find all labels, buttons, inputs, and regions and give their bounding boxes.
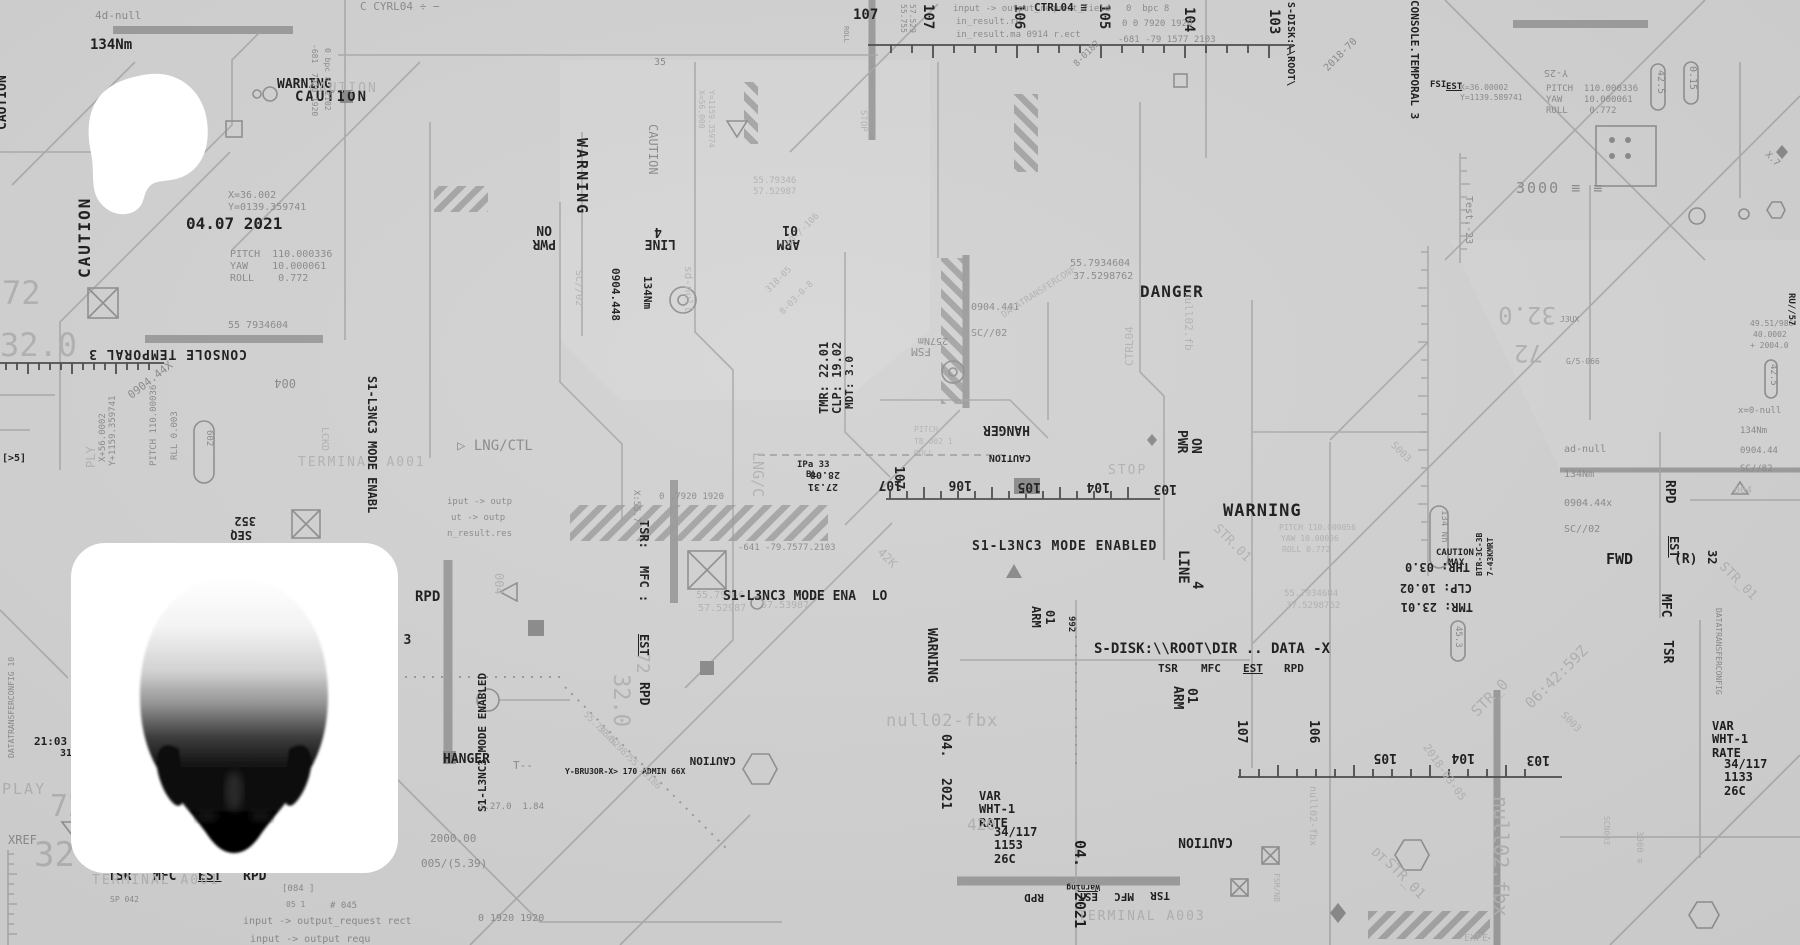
banner-annotation: in_result.re [956, 17, 1021, 27]
banner-annotation: input -> output_request rect [243, 916, 412, 927]
banner-annotation: RLL 0.003 [170, 411, 180, 460]
banner-annotation: 55.79346 [753, 176, 796, 186]
banner-annotation: 103 [1265, 9, 1281, 34]
banner-annotation: CAUTION [0, 75, 11, 130]
banner-annotation: ON [536, 221, 552, 236]
banner-annotation: SC//02 [1564, 524, 1600, 535]
banner-annotation: S-DISK:\\ROOT\DIR .. DATA -X [1094, 642, 1330, 658]
banner-annotation: 105 [1374, 749, 1397, 764]
creator-banner: 4d-null134NmWARNINGCAUTIONCAUTIONX=36.00… [0, 0, 1800, 945]
banner-annotation: SC//82 [1740, 464, 1773, 474]
banner-annotation: [084 ] [282, 884, 315, 894]
banner-annotation: X=36.00002 [1460, 84, 1508, 93]
banner-annotation: 3000 ≡ [1634, 831, 1644, 864]
banner-annotation: STR.01 [1210, 522, 1253, 565]
banner-annotation: x=0-null [1738, 406, 1781, 416]
banner-annotation: ROLL 0.772 [1546, 106, 1616, 116]
banner-annotation: X.7 [1763, 150, 1782, 169]
banner-annotation: TERMINAL A001 [92, 874, 220, 889]
banner-annotation: CONSOLE.TEMPORAL 3 [1408, 0, 1420, 119]
banner-annotation: 7-43KMRT [1487, 537, 1496, 576]
banner-annotation: PWR [533, 235, 556, 250]
banner-annotation: 2000.00 [430, 833, 476, 845]
banner-annotation: iput -> outp [447, 497, 512, 507]
banner-annotation: ROLL 0.772 [230, 273, 308, 284]
banner-annotation: 134Nm [641, 276, 653, 309]
banner-annotation: DATATRANSFERCONFIG 10 [8, 657, 17, 758]
banner-annotation: [>5] [2, 453, 26, 464]
banner-annotation: DATATRANSFERCONFIG [1713, 608, 1722, 695]
banner-annotation: J3UX [1560, 316, 1579, 325]
banner-annotation: 21:03 [34, 736, 67, 748]
banner-annotation: MFC [1114, 890, 1134, 902]
banner-annotation: VAR WHT-1 RATE [1712, 720, 1748, 760]
banner-annotation: ROLL 0.772 [1282, 546, 1330, 555]
banner-annotation: 0 0 7920 1920 [1122, 19, 1192, 29]
banner-annotation: CTRL04 ≡ [1034, 2, 1087, 14]
banner-annotation: FSM [911, 345, 931, 357]
banner-annotation: 104 [1452, 749, 1475, 764]
banner-annotation: sd-null [682, 266, 694, 312]
banner-annotation: 8-03-0-8 [778, 279, 816, 317]
banner-annotation: YAW 10.000061 [1546, 95, 1633, 105]
banner-annotation: 57.52987 [753, 187, 796, 197]
banner-annotation: RPD [1024, 891, 1044, 903]
banner-annotation: PLY [85, 446, 98, 468]
banner-annotation: LCKD [319, 427, 330, 451]
banner-annotation: 134Nm [1740, 426, 1767, 436]
banner-annotation: 106 [949, 476, 972, 491]
banner-annotation: 0 bpc 8 [1126, 4, 1169, 14]
banner-annotation: TERMINAL A003 [1078, 910, 1206, 925]
banner-annotation: 134Nm [1564, 469, 1594, 480]
banner-annotation: 134Nm [90, 38, 132, 54]
banner-annotation: 0904.44 [1740, 446, 1778, 456]
banner-annotation: WARNING [1223, 502, 1302, 521]
banner-annotation: TSR [1158, 663, 1178, 675]
banner-annotation: IPa 33 [797, 460, 830, 470]
banner-annotation: 32.0 [1498, 301, 1556, 328]
banner-annotation: PLAY [2, 781, 46, 798]
banner-annotation: C CYRL04 ÷ − [360, 1, 439, 13]
banner-annotation: 104 [1087, 478, 1110, 493]
banner-annotation: 4 [654, 223, 662, 238]
banner-annotation: 42.5 [1655, 70, 1666, 94]
banner-annotation: in_result.ma 0914 r.ect [956, 30, 1081, 40]
banner-annotation: WARNING [923, 628, 938, 683]
banner-annotation: 105 [1018, 478, 1041, 493]
banner-annotation: RPD [1661, 480, 1676, 503]
banner-annotation: PITCH 110.00036 [149, 385, 159, 466]
banner-annotation: 57.529 [907, 4, 916, 33]
banner-annotation: null02.fb [1182, 291, 1194, 351]
banner-annotation: X+56.0002 [98, 413, 108, 462]
banner-annotation: SP 042 [110, 896, 139, 905]
banner-annotation: LINE [1174, 550, 1190, 584]
banner-annotation: 0904.44x [1564, 498, 1612, 509]
banner-annotation: 06:42:59Z [1522, 643, 1591, 712]
banner-annotation: 42.5 [1768, 364, 1778, 386]
patreon-logo[interactable] [80, 72, 210, 215]
banner-annotation: -681 7920 1920 [309, 44, 318, 116]
banner-annotation: TB 002 1 [914, 438, 953, 447]
banner-annotation: ON [1187, 438, 1202, 454]
banner-annotation: 2018-70 [1322, 36, 1360, 74]
banner-annotation: 004 [492, 573, 505, 595]
banner-annotation: SEQ [230, 528, 252, 541]
banner-annotation: 005/(5.39) [421, 858, 487, 870]
banner-annotation: CAUTION [1436, 548, 1474, 558]
banner-annotation: null02-fbx [1307, 786, 1318, 846]
banner-annotation: # 045 [330, 901, 357, 911]
banner-annotation: 2021 [937, 778, 952, 809]
banner-annotation: S003 [1388, 440, 1413, 465]
banner-annotation: SCN003 [1601, 816, 1610, 845]
banner-annotation: 352 [234, 514, 256, 527]
banner-annotation: S-DISK:\\ROOT\ [1285, 2, 1296, 86]
banner-annotation: YAW 10.00006 [1281, 535, 1339, 544]
banner-annotation: TSR: [637, 520, 650, 549]
banner-annotation: 8-0182 [1072, 39, 1102, 69]
banner-annotation: Y=0139.359741 [228, 202, 306, 213]
banner-annotation: 57.52987 [698, 603, 746, 614]
banner-annotation: TMR: 23.01 [1401, 600, 1473, 613]
banner-annotation: ROLL [841, 26, 849, 43]
banner-annotation: S003 [1558, 710, 1583, 735]
banner-annotation: ad-null [1564, 444, 1606, 455]
banner-annotation: TSR [1150, 889, 1170, 901]
banner-annotation: + 2004.0 [1750, 342, 1789, 351]
banner-annotation: X=56.000 [696, 90, 705, 129]
banner-annotation: YAW 10.000061 [230, 261, 326, 272]
banner-annotation: STOP [1108, 464, 1147, 479]
patreon-blob-icon [80, 72, 210, 215]
banner-annotation: ▷ LNG/CTL [457, 439, 533, 455]
banner-annotation: STR_01 [1716, 560, 1759, 603]
banner-annotation: CONSOLE TEMPORAL 3 [88, 345, 247, 360]
banner-annotation: X:55.7 [631, 490, 641, 523]
banner-annotation: SC//02 [573, 270, 584, 306]
banner-annotation: Y-BRU3OR-X> 170 ADMIN 66X [565, 768, 685, 777]
banner-annotation: 602 [204, 430, 214, 446]
banner-annotation: 27.31 [808, 481, 838, 492]
banner-annotation: ROLL [914, 450, 933, 459]
banner-annotation: ARM [1029, 606, 1042, 628]
banner-annotation: FWD [1606, 551, 1633, 568]
banner-annotation: MFC [1201, 663, 1221, 675]
banner-annotation: G/5-066 [1566, 358, 1600, 367]
banner-annotation: MDT: 3.0 [844, 356, 856, 409]
banner-annotation: 4 [1188, 581, 1204, 589]
banner-annotation: 72 [1514, 339, 1543, 366]
banner-annotation: BTR-3C-3B [1476, 533, 1485, 576]
banner-annotation: 107 [879, 476, 902, 491]
banner-annotation: 004 [274, 376, 296, 389]
banner-annotation: null02.fbx [1490, 796, 1512, 916]
banner-annotation: MFC [1657, 594, 1672, 617]
banner-annotation: 34/117 1133 26C [1724, 758, 1767, 798]
banner-annotation: PWR [1173, 430, 1188, 453]
banner-annotation: THR: 03.0 [1405, 560, 1470, 573]
banner-annotation: S1-L3NC3 MODE ENABLED [972, 540, 1157, 555]
banner-annotation: 107 [853, 8, 878, 24]
banner-annotation: 134 Nh [1439, 510, 1449, 543]
banner-annotation: 01 [1183, 688, 1198, 704]
banner-annotation: CTRL04 [1124, 326, 1136, 366]
banner-annotation: i.27.0 1.84 [479, 802, 544, 812]
banner-annotation: Warning [1066, 882, 1100, 891]
banner-annotation: 3000 ≡ ≡ [1516, 180, 1604, 197]
banner-annotation: Y-2S [1544, 67, 1568, 78]
banner-annotation: 37.5298762 [1286, 601, 1340, 611]
banner-annotation: XREF [8, 834, 37, 847]
banner-annotation: RPD [415, 590, 440, 606]
banner-annotation: 37.52987 [595, 724, 633, 762]
banner-annotation: TERMINAL A001 [298, 456, 426, 471]
banner-annotation: 55 7934604 [228, 320, 288, 331]
banner-annotation: -641 -79.7577.2103 [738, 543, 836, 553]
banner-annotation: EXPE [1464, 933, 1488, 944]
banner-annotation: STOP [858, 110, 868, 132]
banner-annotation: Test.-23 [1463, 196, 1474, 244]
banner-annotation: 55.755 [898, 4, 907, 33]
banner-annotation: EST [1243, 663, 1263, 675]
banner-annotation: 04. [1071, 840, 1088, 867]
banner-annotation: BL [806, 470, 817, 480]
banner-annotation: CLP: 10.02 [1400, 581, 1472, 594]
banner-annotation: n_result.res [447, 529, 512, 539]
banner-annotation: FSM/NB [1271, 873, 1280, 902]
banner-annotation: 45.3 [1453, 626, 1463, 648]
banner-annotation: PITCH 110.000056 [1279, 524, 1356, 533]
banner-annotation: 40.0002 [1753, 331, 1787, 340]
banner-annotation: 42K [874, 546, 899, 571]
banner-annotation: Y=1139.589741 [1460, 94, 1523, 103]
banner-annotation: S1-L3NC3 MODE ENA LO [723, 590, 887, 605]
banner-annotation: 0 1920 1920 [478, 913, 544, 924]
banner-annotation: CAUTION [1178, 833, 1233, 848]
banner-annotation: 32.0 [607, 674, 632, 727]
banner-annotation: 32.0 [0, 328, 77, 364]
banner-annotation: RPD [1284, 663, 1304, 675]
banner-annotation: 37.5298762 [1073, 271, 1133, 282]
banner-annotation: 55.7934604 [1070, 258, 1130, 269]
banner-annotation: PITCH [914, 426, 938, 435]
banner-annotation: 35 [654, 57, 666, 68]
banner-annotation: 107 [1233, 720, 1248, 743]
banner-annotation: X=36.002 [228, 190, 276, 201]
banner-annotation: 0 .7920 1920 [659, 492, 724, 502]
banner-annotation: 0 bpc 8 2102 [322, 48, 331, 111]
banner-annotation: Y=1159.35974 [706, 90, 715, 148]
banner-annotation: 32 [1705, 550, 1718, 564]
banner-annotation: TSR [1659, 640, 1674, 663]
banner-annotation: S1-L3NC3 MODE ENABL [365, 376, 378, 513]
banner-annotation: input -> output requ [250, 934, 370, 945]
banner-annotation: 0.15 [1687, 66, 1698, 90]
banner-annotation: 04.07 2021 [186, 215, 282, 233]
banner-annotation: 55.7934684 [1284, 589, 1338, 599]
banner-annotation: 107 [919, 4, 935, 29]
banner-annotation: 0904.448 [609, 268, 621, 321]
banner-annotation: EST [637, 634, 650, 656]
banner-annotation: CAUTION [646, 124, 659, 175]
banner-annotation: 05 1 [286, 901, 305, 910]
banner-annotation: T-- [513, 760, 533, 772]
banner-annotation: FSI [1430, 80, 1446, 90]
banner-annotation: CAUTION [309, 82, 378, 97]
banner-annotation: 420 [967, 816, 996, 834]
banner-annotation: 992 [1066, 616, 1076, 632]
banner-annotation: -681 -79 1577 2103 [1118, 35, 1216, 45]
banner-annotation: 106 [1305, 720, 1320, 743]
banner-annotation: S1-L3NC3 MODE ENABLED [477, 673, 489, 812]
banner-annotation: SC//02 [971, 328, 1007, 339]
banner-annotation: PITCH 110.000336 [230, 249, 332, 260]
banner-annotation: (R) [1674, 553, 1697, 568]
banner-annotation: 01 [1043, 610, 1056, 624]
banner-annotation: RPD [635, 682, 650, 705]
creator-avatar[interactable] [71, 543, 398, 873]
banner-annotation: 318-05 [764, 265, 794, 295]
banner-annotation: PITCH 110.000336 [1546, 84, 1638, 94]
banner-annotation: CAUTION [690, 754, 736, 766]
banner-annotation: 103 [1527, 751, 1550, 766]
banner-annotation: Y+1159.359741 [108, 396, 118, 466]
banner-annotation: RU//57 [1786, 293, 1796, 326]
banner-annotation: 103 [1154, 480, 1177, 495]
banner-annotation: ut -> outp [451, 513, 505, 523]
banner-annotation: DATATRANSFERCONF [1000, 265, 1078, 321]
banner-annotation: 004 [1734, 485, 1752, 496]
banner-annotation: STR_0 [1468, 676, 1512, 720]
banner-annotation: WARNING [573, 138, 590, 215]
banner-annotation: 34/117 1153 26C [994, 826, 1037, 866]
banner-annotation: LNG/C [749, 452, 766, 497]
banner-annotation: CAUTION [989, 452, 1031, 463]
creator-head-image [71, 543, 398, 873]
banner-annotation: MFC : [637, 566, 650, 602]
banner-annotation: 04. [937, 734, 952, 757]
banner-annotation: 72 [2, 276, 41, 312]
banner-annotation: 4d-null [95, 10, 141, 22]
banner-annotation: HANGER [983, 421, 1030, 436]
banner-annotation: ARM [1169, 686, 1184, 709]
banner-annotation: STR_01 [1381, 856, 1428, 903]
banner-annotation: null02-fbx [886, 712, 998, 731]
